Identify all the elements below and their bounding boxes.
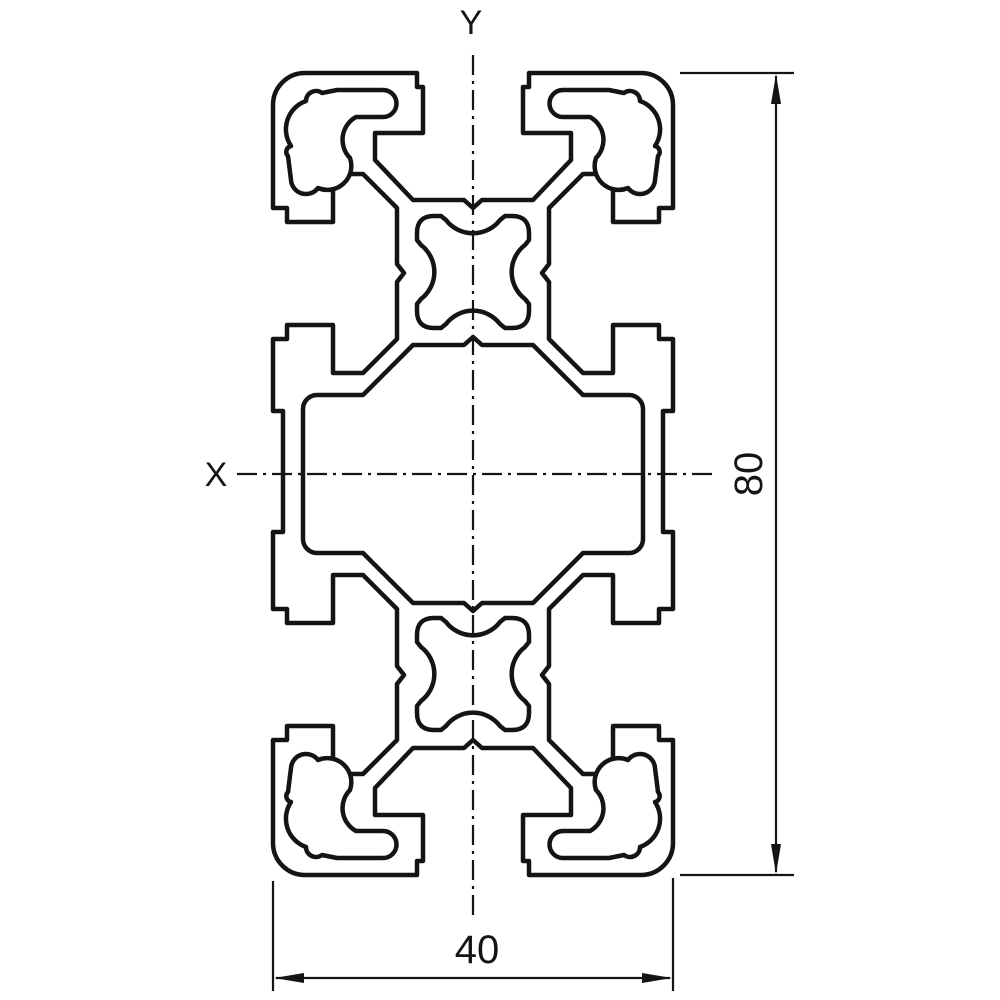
width-dimension: 40 xyxy=(273,878,673,991)
dimension-arrow-up-icon xyxy=(771,74,781,104)
height-dimension-value: 80 xyxy=(727,452,771,497)
width-dimension-value: 40 xyxy=(455,928,500,972)
dimension-arrow-right-icon xyxy=(642,973,672,983)
dimension-arrow-down-icon xyxy=(771,844,781,874)
x-axis-label: X xyxy=(205,456,228,494)
technical-drawing-canvas: Y X 80 40 xyxy=(0,0,1000,1000)
dimension-arrow-left-icon xyxy=(274,973,304,983)
y-axis-label: Y xyxy=(460,4,483,42)
